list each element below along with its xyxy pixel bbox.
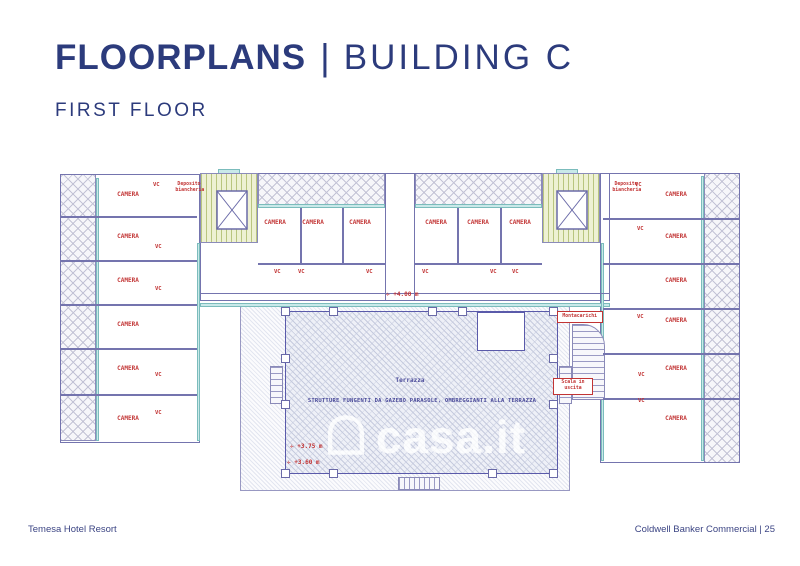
window-band — [200, 303, 610, 307]
pillar — [281, 307, 290, 316]
room-label-vc: VC — [298, 270, 305, 276]
wall — [603, 353, 740, 355]
terrace-bottom-steps — [398, 477, 440, 490]
room-label-camera: CAMERA — [648, 318, 704, 324]
pillar — [329, 469, 338, 478]
terrace-caption: STRUTTURE FUNGENTI DA GAZEBO PARASOLE, O… — [290, 399, 554, 405]
room-label-camera: CAMERA — [340, 220, 380, 226]
house-outline-icon — [324, 413, 368, 462]
room-label-camera: CAMERA — [458, 220, 498, 226]
label-scala: Scala in uscita — [558, 380, 588, 391]
elevator-icon — [216, 190, 248, 230]
label-montacarichi-box: Montacarichi — [557, 311, 603, 323]
wall — [60, 348, 197, 350]
label-deposito: Deposito biancheria — [175, 182, 202, 193]
room-label-vc: VC — [155, 373, 162, 379]
wall — [60, 394, 197, 396]
room-label-camera: CAMERA — [648, 192, 704, 198]
pillar — [488, 469, 497, 478]
wall — [60, 216, 197, 218]
pillar — [549, 469, 558, 478]
title-building: BUILDING C — [344, 38, 574, 77]
room-label-vc: VC — [155, 245, 162, 251]
footer-left: Temesa Hotel Resort — [28, 524, 117, 535]
wall — [603, 218, 740, 220]
window-band — [197, 243, 200, 441]
pillar — [329, 307, 338, 316]
room-label-vc: VC — [155, 287, 162, 293]
room-label-vc: VC — [637, 315, 644, 321]
room-label-vc: VC — [512, 270, 519, 276]
wall — [500, 208, 502, 263]
room-label-vc: VC — [155, 411, 162, 417]
label-montacarichi: Montacarichi — [563, 314, 598, 320]
room-label-vc: VC — [638, 399, 645, 405]
footer-right: Coldwell Banker Commercial | 25 — [635, 524, 775, 535]
room-label-camera: CAMERA — [100, 278, 156, 284]
pergola-louver-left — [270, 366, 283, 404]
room-label-camera: CAMERA — [416, 220, 456, 226]
left-wing-outline — [60, 174, 200, 443]
elevation-value: +4.00 m — [393, 291, 418, 298]
room-label-camera: CAMERA — [100, 234, 156, 240]
wall — [60, 304, 197, 306]
room-label-camera: CAMERA — [100, 366, 156, 372]
room-label-camera: CAMERA — [100, 192, 156, 198]
label-scala-box: Scala in uscita — [553, 378, 593, 395]
room-label-camera: CAMERA — [648, 278, 704, 284]
wall — [415, 263, 542, 265]
room-label-vc: VC — [422, 270, 429, 276]
room-label-camera: CAMERA — [648, 366, 704, 372]
room-label-camera: CAMERA — [648, 234, 704, 240]
pillar — [428, 307, 437, 316]
elevator-icon — [556, 190, 588, 230]
room-label-vc: VC — [490, 270, 497, 276]
wall — [603, 398, 740, 400]
room-label-vc: VC — [274, 270, 281, 276]
elevation-marker-icon: ✛ — [386, 291, 390, 298]
window-band — [258, 204, 385, 208]
wall — [300, 208, 302, 263]
room-label-vc: VC — [638, 373, 645, 379]
watermark: casa.it — [282, 406, 568, 468]
label-deposito: Deposito biancheria — [612, 182, 639, 193]
title-separator: | — [320, 37, 330, 78]
pillar — [281, 354, 290, 363]
wall — [603, 308, 740, 310]
room-label-camera: CAMERA — [500, 220, 540, 226]
wall — [603, 263, 740, 265]
terrace-room — [477, 312, 525, 351]
page-subtitle: FIRST FLOOR — [55, 100, 208, 122]
floorplan: CAMERA CAMERA CAMERA CAMERA CAMERA CAMER… — [60, 166, 740, 498]
pillar — [458, 307, 467, 316]
watermark-text: casa.it — [376, 410, 526, 464]
page-header: FLOORPLANS|BUILDING C — [55, 36, 574, 78]
room-label-camera: CAMERA — [100, 322, 156, 328]
label-terrazza: Terrazza — [378, 378, 442, 384]
room-label-camera: CAMERA — [255, 220, 295, 226]
elevation-marker: ✛ +4.00 m — [386, 292, 419, 298]
room-label-vc: VC — [366, 270, 373, 276]
window-band — [415, 204, 542, 208]
pillar — [549, 354, 558, 363]
room-label-camera: CAMERA — [100, 416, 156, 422]
wall — [457, 208, 459, 263]
room-label-vc: VC — [153, 183, 160, 189]
pillar — [281, 469, 290, 478]
central-corridor — [385, 174, 415, 300]
room-label-vc: VC — [637, 227, 644, 233]
room-label-camera: CAMERA — [648, 416, 704, 422]
wall — [60, 260, 197, 262]
wall — [342, 208, 344, 263]
title-main: FLOORPLANS — [55, 38, 306, 77]
room-label-camera: CAMERA — [293, 220, 333, 226]
wall — [258, 263, 385, 265]
